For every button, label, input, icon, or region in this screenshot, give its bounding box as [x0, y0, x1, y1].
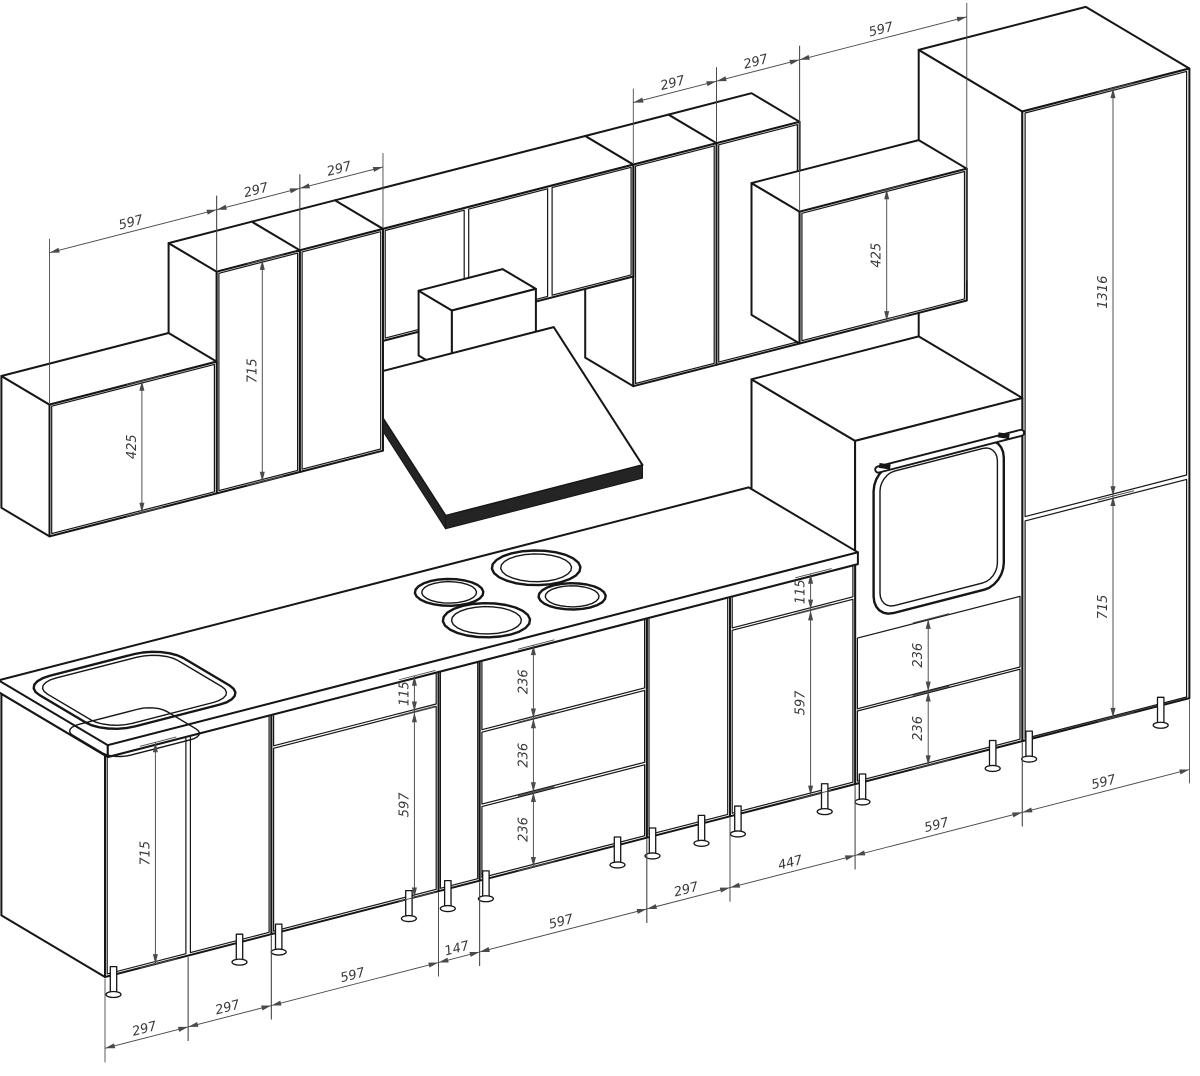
dimension-label: 597 — [339, 965, 367, 986]
cabinet-leg — [406, 891, 412, 916]
dimension-label: 715 — [138, 841, 153, 866]
tall-cabinet-front — [1022, 69, 1189, 742]
dimension-label: 297 — [325, 159, 353, 180]
dimension-label: 1316 — [1096, 276, 1111, 309]
leg-foot — [985, 765, 1000, 771]
dimension-label: 297 — [242, 180, 270, 201]
dimension-label: 597 — [794, 690, 809, 716]
cabinet-leg — [735, 806, 741, 831]
leg-foot — [271, 949, 286, 955]
leg-foot — [106, 992, 121, 998]
cabinet-leg — [1026, 731, 1032, 756]
cabinet-leg — [445, 881, 451, 906]
drawing-page: 2972975971475972974475975975972972972972… — [0, 0, 1200, 1076]
dimension-label: 297 — [659, 73, 687, 94]
cabinet-leg — [614, 837, 620, 862]
dimension-label: 447 — [777, 853, 805, 874]
dimension-label: 236 — [516, 669, 531, 694]
dimension-label: 236 — [516, 743, 531, 768]
cabinet-leg — [698, 815, 704, 840]
dimension-label: 597 — [923, 815, 951, 836]
dimension-label: 115 — [397, 681, 412, 706]
oven-handle-bracket — [998, 435, 1009, 437]
dimension-label: 297 — [131, 1019, 159, 1040]
isometric-kitchen-drawing: 2972975971475972974475975975972972972972… — [0, 0, 1200, 1076]
leg-foot — [730, 831, 745, 837]
leg-foot — [694, 840, 709, 846]
dimension-label: 715 — [245, 358, 260, 383]
leg-foot — [440, 906, 455, 912]
filler-unit-front — [439, 659, 480, 891]
leg-foot — [232, 959, 247, 965]
base-cabinet-front — [647, 595, 730, 838]
oven-handle-bracket — [879, 465, 890, 467]
cabinet-leg — [236, 934, 242, 959]
dimension-label: 236 — [911, 716, 926, 741]
cabinet-leg — [110, 967, 116, 992]
leg-foot — [610, 862, 625, 868]
leg-foot — [1022, 756, 1037, 762]
dimension-label: 597 — [117, 212, 145, 233]
dimension-label: 236 — [911, 643, 926, 668]
cabinet-leg — [276, 924, 282, 949]
cabinet-leg — [483, 871, 489, 896]
cabinet-leg — [822, 784, 828, 809]
dimension-label: 297 — [214, 997, 242, 1018]
wall-cabinet-front — [633, 143, 716, 386]
cabinet-leg — [859, 774, 865, 799]
leg-foot — [478, 896, 493, 902]
cabinet-leg — [990, 741, 996, 766]
dimension-label: 597 — [1090, 772, 1118, 793]
leg-foot — [401, 916, 416, 922]
wall-cabinet-front — [300, 229, 383, 472]
leg-foot — [817, 809, 832, 815]
dimension-label: 597 — [547, 912, 575, 933]
cabinet-leg — [649, 828, 655, 853]
dimension-label: 715 — [1096, 595, 1111, 620]
leg-foot — [1153, 722, 1168, 728]
dimension-label: 115 — [794, 579, 809, 604]
cabinet-leg — [1158, 697, 1164, 722]
dimension-label: 425 — [125, 434, 140, 459]
dimension-label: 597 — [867, 20, 895, 41]
dimension-label: 297 — [672, 880, 700, 901]
dimension-label: 597 — [397, 792, 412, 818]
dimension-label: 147 — [443, 938, 471, 959]
dimension-label: 236 — [516, 817, 531, 842]
dimension-label: 425 — [870, 243, 885, 268]
leg-foot — [855, 799, 870, 805]
dimension-label: 297 — [742, 52, 770, 73]
